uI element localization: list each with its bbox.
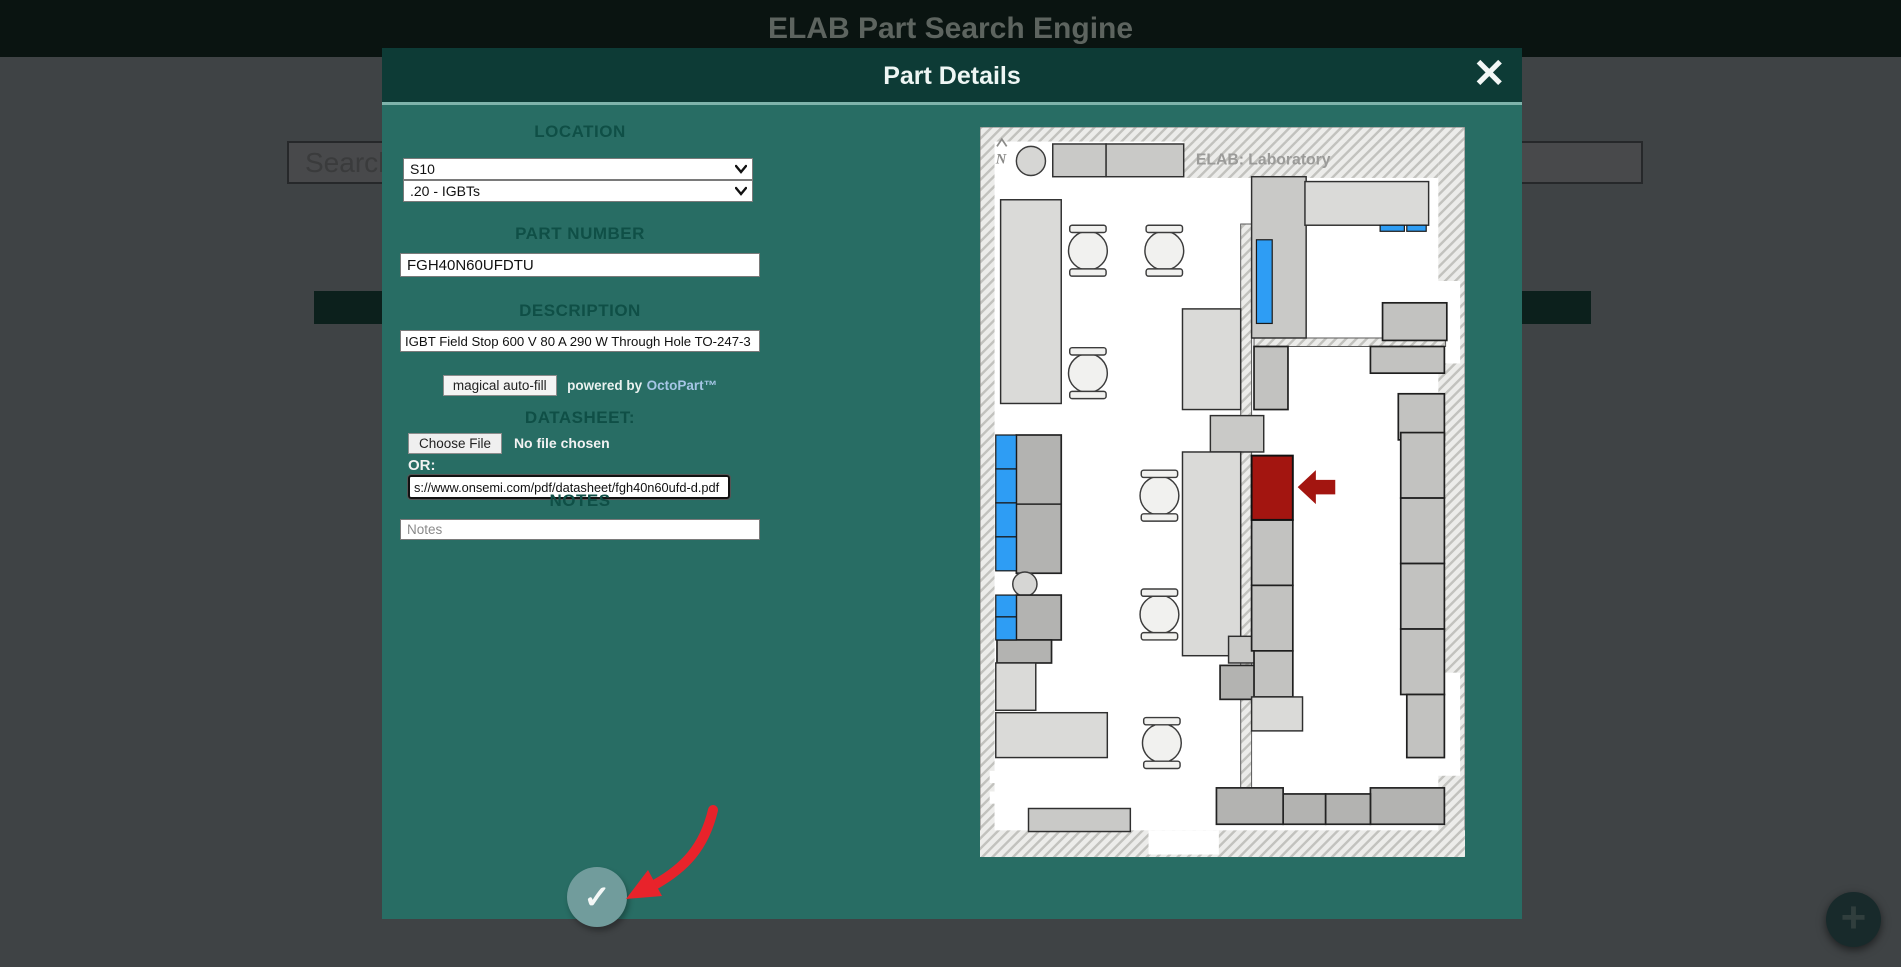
or-label: OR:: [408, 457, 436, 474]
location-bin-select[interactable]: .20 - IGBTs: [403, 180, 753, 202]
compass-label: N: [995, 151, 1007, 167]
description-input[interactable]: [400, 330, 760, 352]
datasheet-label: DATASHEET:: [400, 408, 760, 428]
part-number-label: PART NUMBER: [400, 224, 760, 244]
powered-by-text: powered by: [567, 378, 642, 393]
choose-file-button[interactable]: Choose File: [408, 433, 502, 454]
checkmark-icon: ✓: [584, 879, 611, 915]
map-room-title: ELAB: Laboratory: [1196, 152, 1331, 169]
magical-autofill-button[interactable]: magical auto-fill: [443, 375, 557, 396]
modal-header: Part Details ✕: [382, 48, 1522, 105]
notes-input[interactable]: [400, 519, 760, 540]
close-icon[interactable]: ✕: [1472, 46, 1506, 103]
part-form: LOCATION S10 .20 - IGBTs PART NUMBER DES…: [400, 105, 760, 919]
notes-label: NOTES: [400, 491, 760, 511]
description-label: DESCRIPTION: [400, 301, 760, 321]
location-shelf-select-wrap: S10: [403, 158, 753, 180]
part-details-modal: Part Details ✕ LOCATION S10 .20 - IGBTs …: [382, 48, 1522, 919]
octopart-link[interactable]: OctoPart™: [647, 378, 718, 393]
location-label: LOCATION: [400, 122, 760, 142]
plus-icon: +: [1841, 893, 1867, 942]
save-part-button[interactable]: ✓: [567, 867, 627, 927]
add-part-button[interactable]: +: [1826, 892, 1881, 947]
autofill-row: magical auto-fill powered by OctoPart™: [400, 375, 760, 396]
modal-title: Part Details: [382, 48, 1522, 105]
annotation-arrow-icon: [610, 800, 735, 905]
location-bin-select-wrap: .20 - IGBTs: [403, 180, 753, 202]
part-number-input[interactable]: [400, 253, 760, 277]
file-row: Choose File No file chosen: [408, 433, 760, 454]
floor-map[interactable]: N ELAB: Laboratory: [980, 127, 1465, 857]
location-shelf-select[interactable]: S10: [403, 158, 753, 180]
no-file-chosen-text: No file chosen: [514, 435, 610, 451]
